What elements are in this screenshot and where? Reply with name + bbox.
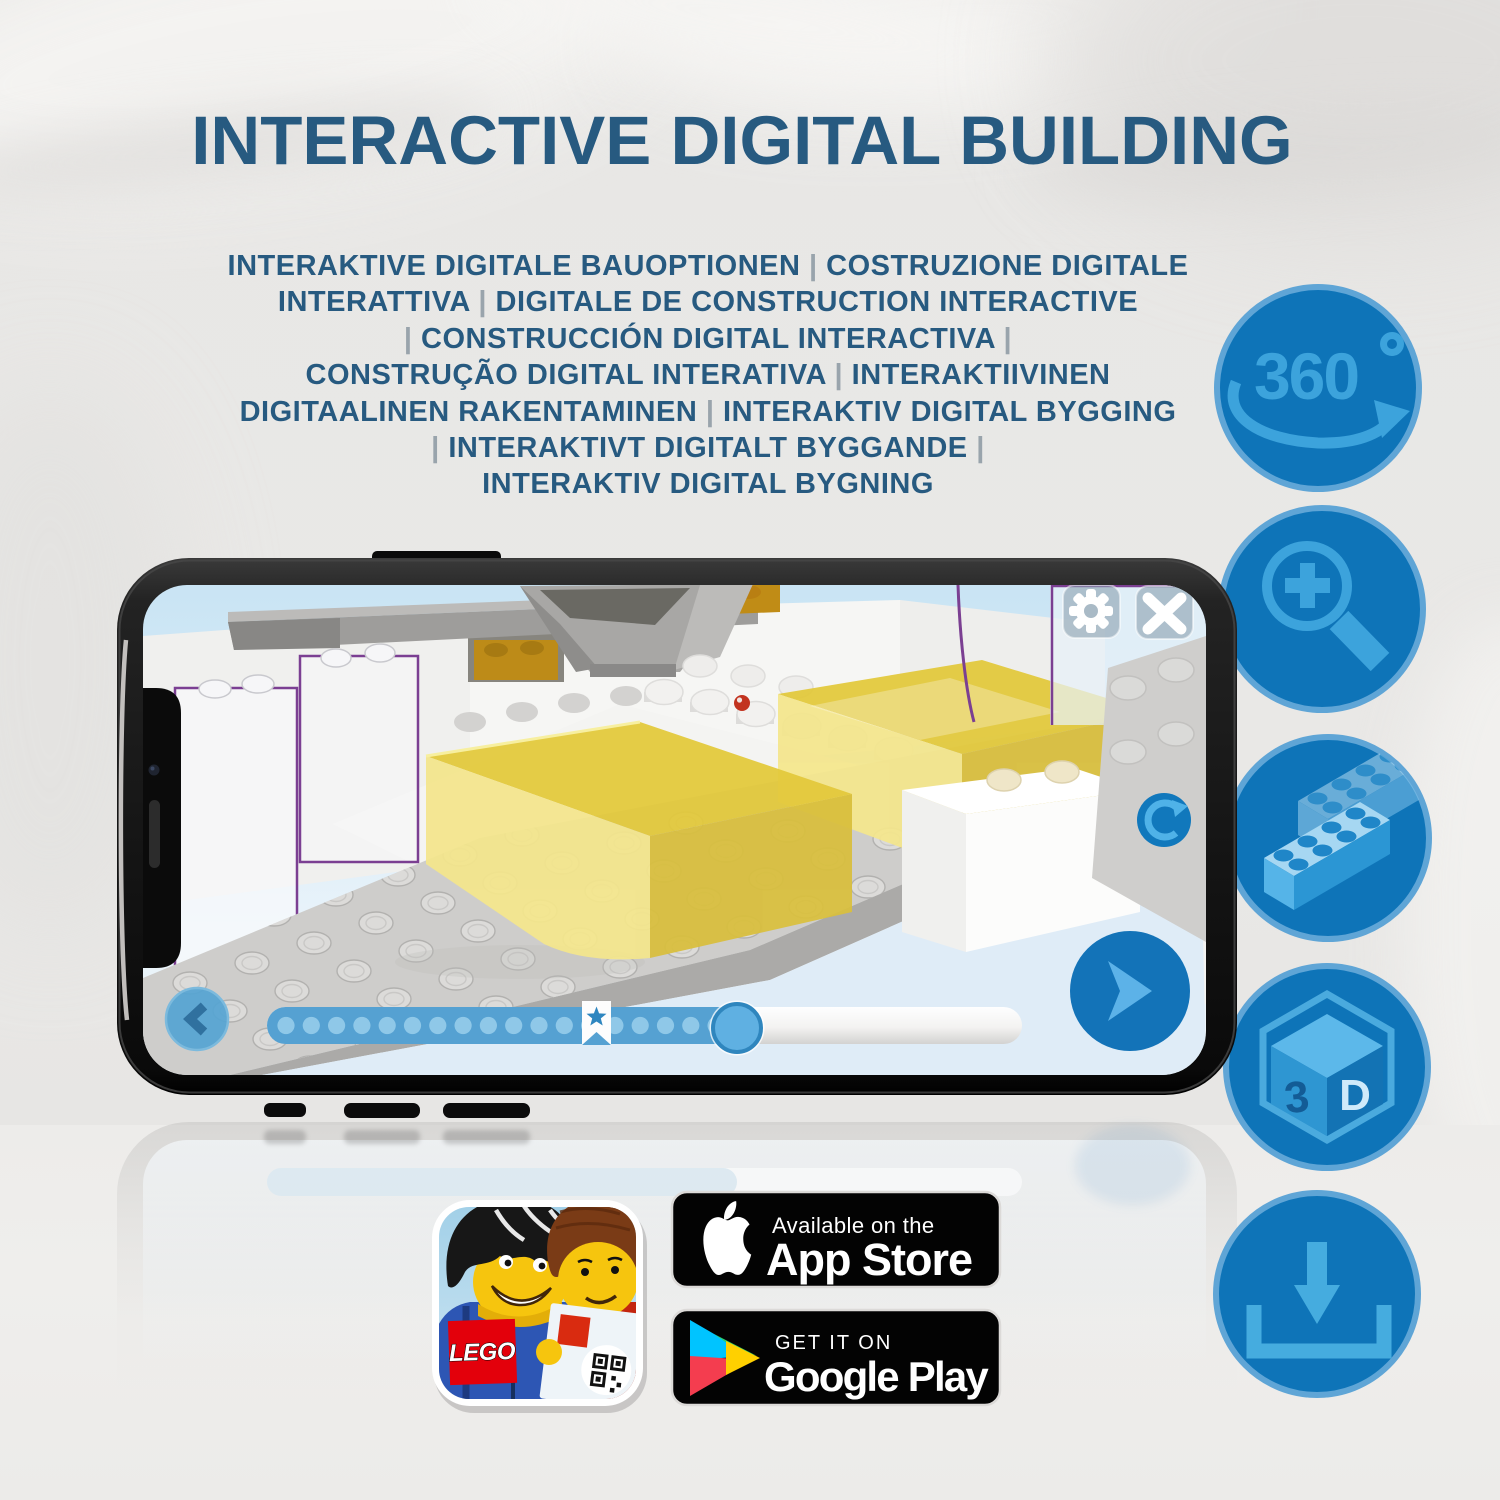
svg-text:Google Play: Google Play <box>764 1353 989 1400</box>
svg-text:App Store: App Store <box>766 1234 972 1285</box>
svg-text:360: 360 <box>1254 339 1358 413</box>
svg-text:D: D <box>1339 1071 1371 1120</box>
svg-text:GET IT ON: GET IT ON <box>775 1332 892 1354</box>
svg-text:3: 3 <box>1282 1072 1311 1123</box>
svg-text:LEGO: LEGO <box>449 1338 517 1367</box>
